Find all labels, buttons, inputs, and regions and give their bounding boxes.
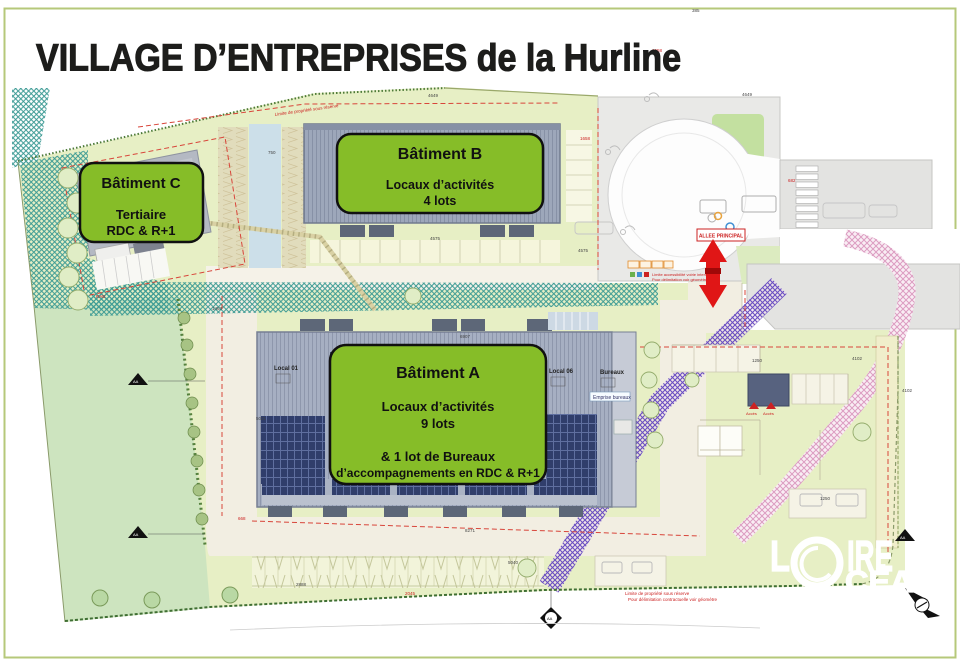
- svg-text:Tertiaire: Tertiaire: [116, 207, 166, 222]
- svg-text:1463: 1463: [212, 306, 223, 311]
- svg-text:1250: 1250: [820, 496, 831, 501]
- svg-text:1250: 1250: [752, 358, 763, 363]
- svg-text:8271: 8271: [465, 528, 476, 533]
- svg-text:AA: AA: [900, 535, 906, 540]
- svg-text:Local 01: Local 01: [274, 366, 299, 372]
- svg-text:Accès: Accès: [763, 411, 774, 416]
- svg-text:4102: 4102: [852, 356, 863, 361]
- svg-text:750: 750: [268, 150, 276, 155]
- svg-text:Locaux d’activités: Locaux d’activités: [386, 178, 494, 192]
- svg-text:Locaux d’activités: Locaux d’activités: [382, 399, 495, 414]
- svg-text:ALLEE PRINCIPAL: ALLEE PRINCIPAL: [699, 234, 743, 240]
- svg-text:5021: 5021: [256, 416, 267, 421]
- svg-text:1658: 1658: [580, 136, 591, 141]
- svg-text:Emprise bureaux: Emprise bureaux: [593, 395, 631, 401]
- svg-text:Pour délimitation voir géomètr: Pour délimitation voir géomètre: [652, 277, 708, 282]
- svg-text:4649: 4649: [428, 93, 439, 98]
- svg-text:Bâtiment B: Bâtiment B: [398, 146, 482, 163]
- svg-text:Pour délimitation contractuell: Pour délimitation contractuelle voir géo…: [628, 597, 718, 602]
- svg-text:RDC & R+1: RDC & R+1: [107, 223, 176, 238]
- svg-text:9 lots: 9 lots: [421, 416, 455, 431]
- svg-text:Limite de propriété sous réser: Limite de propriété sous réserve: [625, 591, 690, 596]
- svg-text:RAB: RAB: [96, 294, 105, 299]
- svg-text:Bâtiment C: Bâtiment C: [101, 175, 180, 192]
- svg-text:d’accompagnements en RDC & R+1: d’accompagnements en RDC & R+1: [336, 466, 540, 480]
- svg-text:2888: 2888: [296, 582, 307, 587]
- svg-text:Local 06: Local 06: [549, 369, 574, 375]
- svg-text:4649: 4649: [742, 92, 753, 97]
- svg-text:668: 668: [238, 516, 246, 521]
- svg-text:VILLAGE D’ENTREPRISES de la Hu: VILLAGE D’ENTREPRISES de la Hurline: [36, 38, 681, 80]
- svg-text:4 lots: 4 lots: [424, 194, 457, 208]
- svg-text:AA: AA: [133, 379, 139, 384]
- svg-text:& 1 lot de Bureaux: & 1 lot de Bureaux: [381, 449, 496, 464]
- svg-text:4575: 4575: [430, 236, 441, 241]
- svg-text:Accès: Accès: [746, 411, 757, 416]
- svg-text:2045: 2045: [405, 591, 416, 596]
- svg-text:Bâtiment A: Bâtiment A: [396, 365, 480, 382]
- svg-text:L: L: [770, 532, 790, 581]
- svg-text:385: 385: [692, 8, 700, 13]
- svg-text:4575: 4575: [578, 248, 589, 253]
- svg-text:CÉAN: CÉAN: [845, 564, 937, 599]
- svg-text:AA: AA: [133, 532, 139, 537]
- svg-text:682: 682: [788, 178, 796, 183]
- svg-text:4102: 4102: [902, 388, 913, 393]
- svg-text:6907: 6907: [460, 334, 471, 339]
- svg-text:5040: 5040: [508, 560, 519, 565]
- svg-text:AA: AA: [547, 616, 553, 621]
- svg-text:Bureaux: Bureaux: [600, 370, 625, 376]
